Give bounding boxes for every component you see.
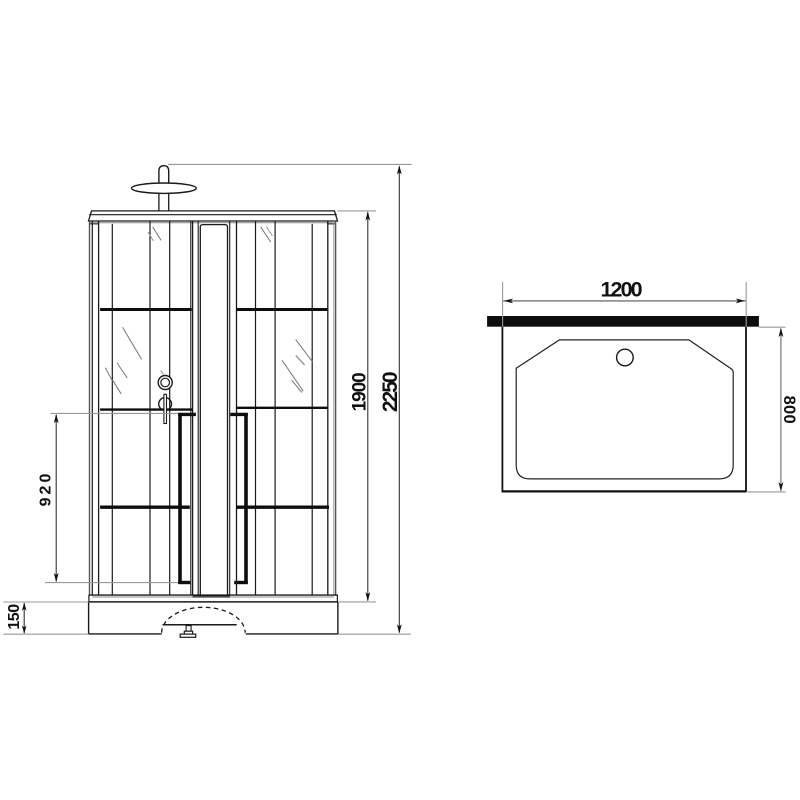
svg-text:150: 150 (6, 604, 23, 630)
svg-text:920: 920 (37, 471, 54, 507)
svg-text:2250: 2250 (379, 372, 402, 412)
svg-text:1200: 1200 (600, 278, 642, 302)
svg-text:800: 800 (780, 396, 798, 424)
svg-text:1900: 1900 (349, 373, 370, 411)
